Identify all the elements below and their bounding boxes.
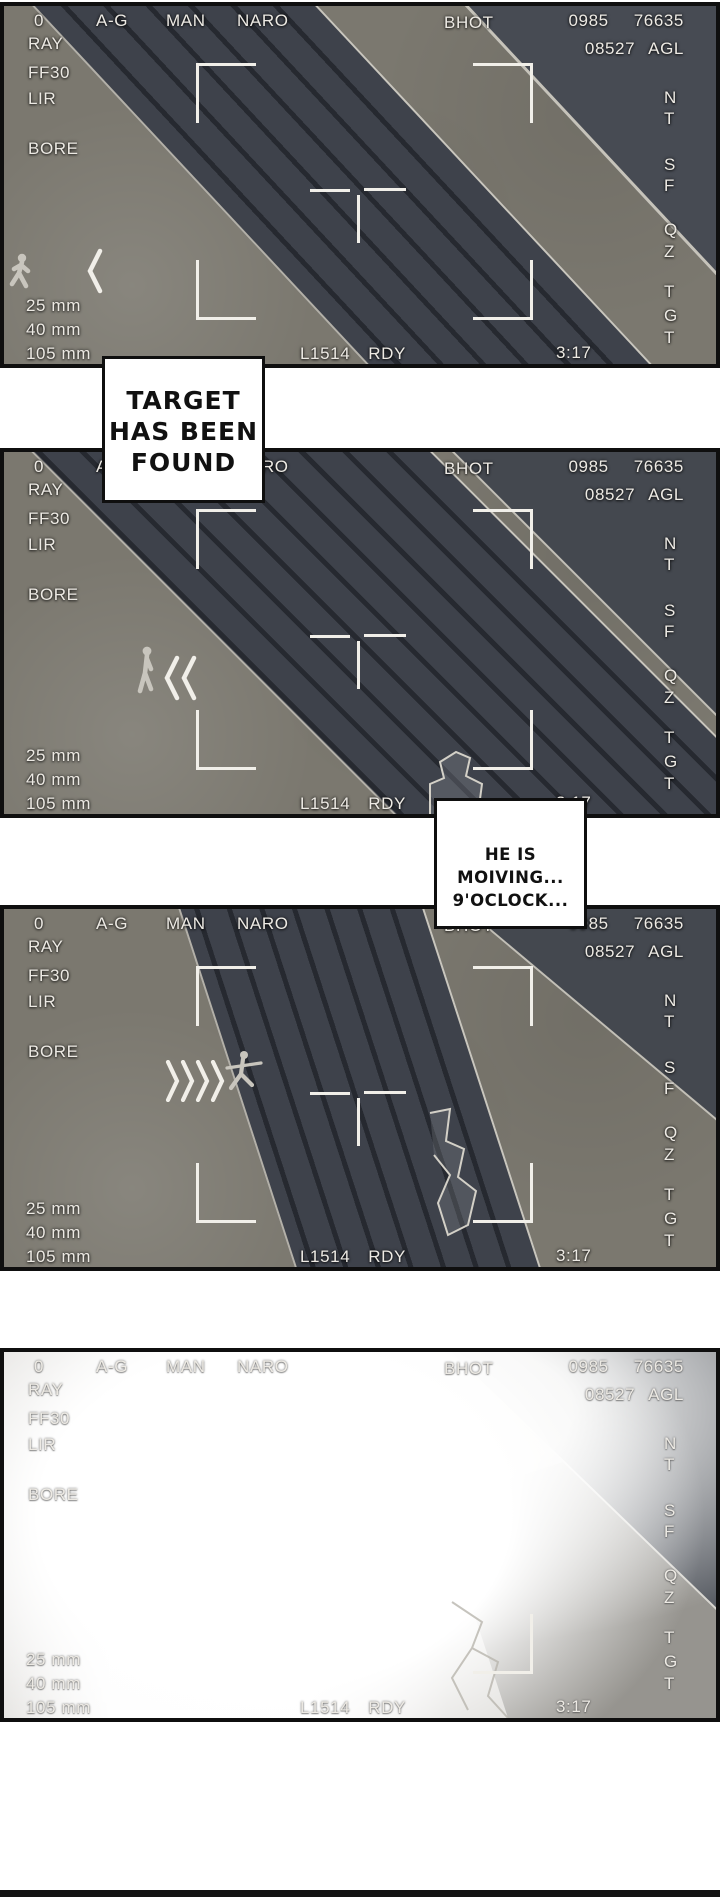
coordinates-readout: 098576635 (569, 458, 685, 475)
right-column-letter: T (664, 1232, 675, 1249)
gun-25mm-label: 25 mm (26, 1651, 81, 1668)
altitude-unit: AGL (648, 942, 684, 961)
tracking-gate-corner (196, 966, 256, 1026)
right-column-letter: F (664, 1080, 675, 1097)
right-column-letter: T (664, 1675, 675, 1692)
right-column-letter: N (664, 89, 677, 106)
polarity-label: BHOT (444, 460, 494, 477)
time-readout: 3:17 (556, 1698, 592, 1715)
tracking-gate-corner (196, 509, 256, 569)
altitude-readout: 08527AGL (585, 943, 684, 960)
right-column-letter: N (664, 992, 677, 1009)
time-readout: 3:17 (556, 344, 592, 361)
ready-status: RDY (368, 794, 406, 813)
fov-label: NARO (237, 1358, 289, 1375)
altitude-readout: 08527AGL (585, 40, 684, 57)
boresight-label: BORE (28, 140, 79, 157)
altitude-value: 08527 (585, 39, 635, 58)
gun-105mm-label: 105 mm (26, 795, 91, 812)
boresight-label: BORE (28, 1043, 79, 1060)
right-column-letter: T (664, 556, 675, 573)
coordinates-readout: 098576635 (569, 12, 685, 29)
reticle-right-tick (364, 188, 406, 191)
right-column-letter: F (664, 177, 675, 194)
right-column-letter: S (664, 1502, 676, 1519)
right-column-letter: T (664, 1456, 675, 1473)
boresight-label: BORE (28, 1486, 79, 1503)
tracking-gate-corner (473, 509, 533, 569)
ready-status: RDY (368, 1698, 406, 1717)
laser-status-readout: L1514RDY (300, 795, 406, 812)
ready-status: RDY (368, 344, 406, 363)
right-column-letter: F (664, 623, 675, 640)
gun-40mm-label: 40 mm (26, 771, 81, 788)
right-column-letter: S (664, 156, 676, 173)
flir-hud-overlay: 0 A-G MAN NARO BHOT 098576635 08527AGL R… (4, 909, 716, 1267)
coordinates-readout: 098576635 (569, 1358, 685, 1375)
right-column-letter: T (664, 283, 675, 300)
laser-status-readout: L1514RDY (300, 1699, 406, 1716)
right-column-letter: T (664, 775, 675, 792)
tracking-gate-corner (473, 710, 533, 770)
fov-label: NARO (237, 12, 289, 29)
right-column-letter: Q (664, 221, 678, 238)
flir-panel-2: 0 A-G MAN NARO BHOT 098576635 08527AGL R… (0, 448, 720, 818)
comic-page: 0 A-G MAN NARO BHOT 098576635 08527AGL R… (0, 0, 720, 1897)
tracking-gate-corner (473, 1614, 533, 1674)
gun-40mm-label: 40 mm (26, 1675, 81, 1692)
tracking-gate-corner (196, 710, 256, 770)
gun-25mm-label: 25 mm (26, 747, 81, 764)
tracking-gate-corner (196, 1163, 256, 1223)
laser-code: L1514 (300, 1247, 350, 1266)
right-column-letter: T (664, 329, 675, 346)
mode-indicator: 0 (34, 915, 44, 932)
page-bottom-border (0, 1890, 720, 1897)
bubble-text-line: FOUND (105, 447, 262, 478)
speech-bubble-2: HE IS MOIVING... 9'OCLOCK... (434, 798, 587, 929)
flir-panel-4-explosion: 0 A-G MAN NARO BHOT 098576635 08527AGL R… (0, 1348, 720, 1722)
coordinate-a: 0985 (569, 1357, 609, 1376)
right-column-letter: S (664, 602, 676, 619)
ready-status: RDY (368, 1247, 406, 1266)
reticle-right-tick (364, 1091, 406, 1094)
speech-bubble-1: TARGET HAS BEEN FOUND (102, 356, 265, 503)
flir-hud-overlay: 0 A-G MAN NARO BHOT 098576635 08527AGL R… (4, 1352, 716, 1718)
laser-status-readout: L1514RDY (300, 345, 406, 362)
right-column-letter: T (664, 729, 675, 746)
right-column-letter: Q (664, 667, 678, 684)
right-column-letter: Z (664, 689, 675, 706)
gun-25mm-label: 25 mm (26, 297, 81, 314)
boresight-label: BORE (28, 586, 79, 603)
tracking-gate-corner (196, 260, 256, 320)
sensor-label-ff30: FF30 (28, 64, 70, 81)
bubble-text-line: 9'OCLOCK... (437, 889, 584, 912)
master-mode-label: A-G (96, 915, 128, 932)
tracking-gate-corner (473, 63, 533, 123)
right-column-letter: T (664, 1629, 675, 1646)
sensor-label-lir: LIR (28, 536, 56, 553)
sensor-label-ff30: FF30 (28, 967, 70, 984)
coordinate-b: 76635 (634, 11, 684, 30)
master-mode-label: A-G (96, 1358, 128, 1375)
polarity-label: BHOT (444, 14, 494, 31)
reticle-left-tick (310, 189, 350, 192)
reticle-left-tick (310, 1092, 350, 1095)
reticle-post (357, 1098, 360, 1146)
altitude-unit: AGL (648, 1385, 684, 1404)
reticle-right-tick (364, 634, 406, 637)
track-mode-label: MAN (166, 12, 206, 29)
bubble-text-line: HE IS (437, 843, 584, 866)
sensor-label-lir: LIR (28, 993, 56, 1010)
sensor-label-ray: RAY (28, 938, 64, 955)
sensor-label-ff30: FF30 (28, 510, 70, 527)
reticle-post (357, 641, 360, 689)
right-column-letter: F (664, 1523, 675, 1540)
mode-indicator: 0 (34, 458, 44, 475)
laser-status-readout: L1514RDY (300, 1248, 406, 1265)
laser-code: L1514 (300, 794, 350, 813)
right-column-letter: S (664, 1059, 676, 1076)
laser-code: L1514 (300, 1698, 350, 1717)
gun-105mm-label: 105 mm (26, 345, 91, 362)
right-column-letter: G (664, 307, 678, 324)
sensor-label-ff30: FF30 (28, 1410, 70, 1427)
altitude-value: 08527 (585, 942, 635, 961)
track-mode-label: MAN (166, 915, 206, 932)
right-column-letter: Q (664, 1567, 678, 1584)
master-mode-label: A-G (96, 12, 128, 29)
tracking-gate-corner (473, 966, 533, 1026)
right-column-letter: N (664, 1435, 677, 1452)
coordinate-b: 76635 (634, 457, 684, 476)
time-readout: 3:17 (556, 1247, 592, 1264)
mode-indicator: 0 (34, 12, 44, 29)
right-column-letter: Z (664, 1146, 675, 1163)
gun-40mm-label: 40 mm (26, 1224, 81, 1241)
flir-panel-1: 0 A-G MAN NARO BHOT 098576635 08527AGL R… (0, 2, 720, 368)
fov-label: NARO (237, 915, 289, 932)
right-column-letter: Z (664, 243, 675, 260)
reticle-left-tick (310, 635, 350, 638)
sensor-label-ray: RAY (28, 1381, 64, 1398)
flir-hud-overlay: 0 A-G MAN NARO BHOT 098576635 08527AGL R… (4, 6, 716, 364)
right-column-letter: Z (664, 1589, 675, 1606)
mode-indicator: 0 (34, 1358, 44, 1375)
coordinate-a: 0985 (569, 457, 609, 476)
laser-code: L1514 (300, 344, 350, 363)
right-column-letter: G (664, 753, 678, 770)
tracking-gate-corner (473, 260, 533, 320)
flir-hud-overlay: 0 A-G MAN NARO BHOT 098576635 08527AGL R… (4, 452, 716, 814)
track-mode-label: MAN (166, 1358, 206, 1375)
right-column-letter: T (664, 1013, 675, 1030)
sensor-label-ray: RAY (28, 481, 64, 498)
bubble-text-line: TARGET (105, 385, 262, 416)
gun-105mm-label: 105 mm (26, 1699, 91, 1716)
reticle-post (357, 195, 360, 243)
right-column-letter: T (664, 1186, 675, 1203)
altitude-readout: 08527AGL (585, 1386, 684, 1403)
right-column-letter: Q (664, 1124, 678, 1141)
altitude-value: 08527 (585, 1385, 635, 1404)
coordinate-b: 76635 (634, 914, 684, 933)
altitude-readout: 08527AGL (585, 486, 684, 503)
right-column-letter: G (664, 1210, 678, 1227)
bubble-text-line: HAS BEEN (105, 416, 262, 447)
altitude-value: 08527 (585, 485, 635, 504)
polarity-label: BHOT (444, 1360, 494, 1377)
gun-105mm-label: 105 mm (26, 1248, 91, 1265)
altitude-unit: AGL (648, 485, 684, 504)
altitude-unit: AGL (648, 39, 684, 58)
sensor-label-lir: LIR (28, 90, 56, 107)
right-column-letter: G (664, 1653, 678, 1670)
gun-40mm-label: 40 mm (26, 321, 81, 338)
gun-25mm-label: 25 mm (26, 1200, 81, 1217)
bubble-text-line: MOIVING... (437, 866, 584, 889)
tracking-gate-corner (473, 1163, 533, 1223)
sensor-label-ray: RAY (28, 35, 64, 52)
right-column-letter: N (664, 535, 677, 552)
coordinate-b: 76635 (634, 1357, 684, 1376)
tracking-gate-corner (196, 63, 256, 123)
flir-panel-3: 0 A-G MAN NARO BHOT 098576635 08527AGL R… (0, 905, 720, 1271)
sensor-label-lir: LIR (28, 1436, 56, 1453)
coordinate-a: 0985 (569, 11, 609, 30)
right-column-letter: T (664, 110, 675, 127)
